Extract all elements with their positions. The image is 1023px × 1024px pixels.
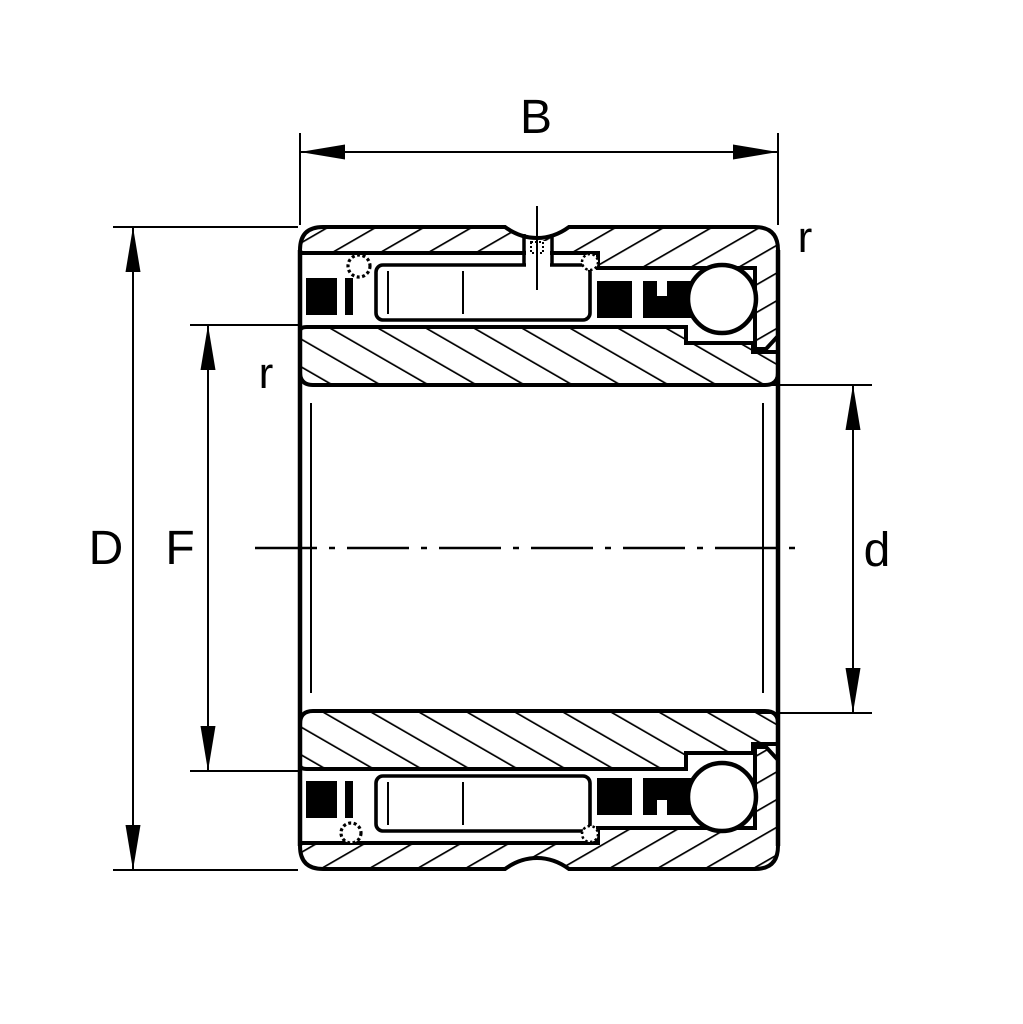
chamfer-label-left: r	[259, 349, 274, 398]
dimension-label-d-bore: d	[864, 524, 891, 577]
bearing-drawing: B D F d r r	[0, 0, 1023, 1024]
cage-rivet-bottom-right	[582, 826, 598, 842]
ball-bottom	[688, 763, 756, 831]
ball-top	[688, 265, 756, 333]
seal-top	[306, 278, 353, 315]
dimension-label-b: B	[520, 91, 552, 144]
ball-cage-bottom	[597, 778, 692, 815]
technical-drawing-canvas: B D F d r r	[0, 0, 1023, 1024]
seal-bottom	[306, 781, 353, 818]
ball-cage-top	[597, 281, 692, 318]
cage-rivet-top-right	[582, 254, 598, 270]
needle-rollers-top	[376, 265, 590, 320]
dimension-label-d-outer: D	[89, 522, 124, 575]
cage-rivet-top-left	[348, 255, 370, 277]
dimension-label-f: F	[165, 522, 194, 575]
chamfer-label-right: r	[798, 213, 813, 262]
needle-rollers-bottom	[376, 776, 590, 831]
cage-rivet-bottom-left	[341, 823, 361, 843]
